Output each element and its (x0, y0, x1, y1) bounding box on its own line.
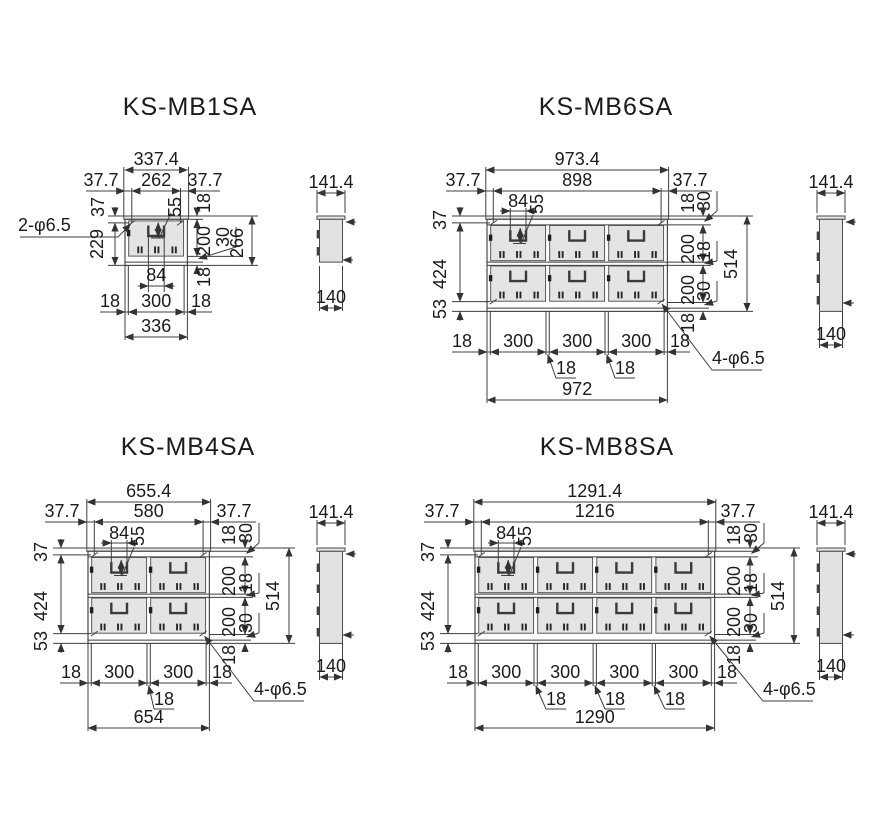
mb4-row-gap-label: 18 (236, 573, 256, 593)
mb4-handle-width-label: 84 (109, 523, 129, 543)
mb8-bottom-offset-label: 53 (418, 631, 438, 651)
mb1-side-body-depth-label: 140 (316, 287, 346, 307)
mb8-gap30-bottom-label: 30 (741, 613, 761, 633)
mb8-col-height-label: 424 (418, 591, 438, 621)
mb4-hole-note-label: 4-φ6.5 (254, 679, 307, 699)
mb8-side-body-depth-label: 140 (816, 656, 846, 676)
mb6-foot-right-label: 18 (670, 331, 690, 351)
mb6-margin-right-label: 37.7 (672, 170, 707, 190)
mb4-unit-width-label2: 300 (163, 662, 193, 682)
mb8-div-gap-label3: 18 (665, 689, 685, 709)
mb8-handle-drop-label: 55 (515, 526, 535, 546)
mb8-div-gap-label: 18 (546, 689, 566, 709)
mb4-side-body-depth-label: 140 (316, 656, 346, 676)
mb6-gap30-bottom-label: 30 (694, 281, 714, 301)
mb4-side-overall-depth-label: 141.4 (308, 502, 353, 522)
mailbox-dimension-drawing: KS-MB1SA 337.4 37.7 262 37.7 2-φ6.5 37 2… (0, 0, 878, 825)
diagram-mb6: KS-MB6SA 973.4 37.7 898 37.7 84 (430, 93, 856, 403)
mb4-bottom-offset-label: 53 (31, 631, 51, 651)
mb8-door (595, 558, 652, 593)
mb1-body-width-label: 336 (141, 316, 171, 336)
mb8-door (536, 558, 593, 593)
mb4-top-offset-label: 37 (31, 542, 51, 562)
mb1-flange-top-label: 18 (194, 193, 214, 213)
mb4-handle-drop-label: 55 (128, 526, 148, 546)
mb1-overall-height-label: 266 (227, 228, 247, 258)
mb8-hole-note-label: 4-φ6.5 (763, 679, 816, 699)
mb8-overall-width-label: 1291.4 (567, 481, 622, 501)
mb1-overall-width-label: 337.4 (134, 149, 179, 169)
mb6-unit-width-label: 300 (503, 331, 533, 351)
mb6-handle-drop-label: 55 (527, 194, 547, 214)
mb8-door (477, 598, 534, 633)
mb1-flange-bottom-label: 18 (194, 267, 214, 287)
mb6-unit-width-label2: 300 (562, 331, 592, 351)
mb1-hole-span-label: 262 (141, 170, 171, 190)
mb4-front-view (87, 548, 211, 643)
mb6-door (607, 266, 664, 301)
mb8-door (595, 598, 652, 633)
mb4-gap30-top-label: 30 (236, 523, 256, 543)
mb6-row-gap-label: 18 (694, 241, 714, 261)
mb4-door (149, 598, 206, 633)
mb8-foot-right-label: 18 (717, 662, 737, 682)
mb4-margin-right-label: 37.7 (216, 501, 251, 521)
mb8-hole-span-label: 1216 (575, 501, 615, 521)
mb8-title: KS-MB8SA (540, 433, 674, 461)
drawing-canvas: KS-MB1SA 337.4 37.7 262 37.7 2-φ6.5 37 2… (0, 0, 878, 825)
mb6-door (548, 226, 605, 261)
mb1-top-offset-label: 37 (88, 197, 108, 217)
mb8-overall-height-label: 514 (768, 581, 788, 611)
mb8-foot-left-label: 18 (448, 662, 468, 682)
mb6-hole-note-label: 4-φ6.5 (712, 348, 765, 368)
mb4-overall-height-label: 514 (263, 581, 283, 611)
mb4-col-height-label: 424 (31, 591, 51, 621)
mb8-gap30-top-label: 30 (741, 523, 761, 543)
mb1-hole-note-label: 2-φ6.5 (18, 215, 71, 235)
mb6-hole-span-label: 898 (562, 170, 592, 190)
mb8-margin-right-label: 37.7 (720, 501, 755, 521)
mb8-door (654, 558, 711, 593)
mb6-body-width-label: 972 (562, 379, 592, 399)
mb8-div-gap-label2: 18 (605, 689, 625, 709)
mb1-handle-drop-label: 55 (165, 197, 185, 217)
mb6-overall-width-label: 973.4 (555, 149, 600, 169)
mb8-unit-width-label2: 300 (550, 662, 580, 682)
mb4-hole-span-label: 580 (134, 501, 164, 521)
mb1-foot-left-label: 18 (100, 291, 120, 311)
mb6-overall-height-label: 514 (721, 249, 741, 279)
mb8-side-overall-depth-label: 141.4 (808, 502, 853, 522)
mb8-front-view (474, 548, 716, 643)
mb6-col-height-label: 424 (430, 259, 450, 289)
mb6-flange-bottom-label: 18 (678, 313, 698, 333)
mb6-foot-left-label: 18 (452, 331, 472, 351)
mb8-side-view: 141.4 140 (808, 502, 856, 680)
mb6-handle-width-label: 84 (508, 191, 528, 211)
mb6-bottom-offset-label: 53 (430, 299, 450, 319)
mb4-unit-width-label: 300 (104, 662, 134, 682)
mb4-body-width-label: 654 (134, 707, 164, 727)
mb4-margin-left-label: 37.7 (44, 501, 79, 521)
mb8-row-gap-label: 18 (741, 573, 761, 593)
mb1-front-view (124, 216, 189, 265)
mb6-top-offset-label: 37 (430, 210, 450, 230)
mb6-side-body-depth-label: 140 (816, 324, 846, 344)
mb8-top-offset-label: 37 (418, 542, 438, 562)
mb8-margin-left-label: 37.7 (424, 501, 459, 521)
mb6-gap30-top-label: 30 (694, 191, 714, 211)
mb1-foot-right-label: 18 (191, 291, 211, 311)
mb6-door (489, 266, 546, 301)
mb1-door-height-label: 200 (194, 226, 214, 256)
mb6-title: KS-MB6SA (539, 93, 673, 121)
mb4-overall-width-label: 655.4 (126, 481, 171, 501)
mb6-door (607, 226, 664, 261)
mb1-side-view: 141.4 140 (308, 172, 356, 311)
diagram-mb8: KS-MB8SA 1291.4 37.7 1216 37.7 84 (418, 433, 856, 731)
mb4-gap30-bottom-label: 30 (236, 613, 256, 633)
mb8-unit-width-label: 300 (491, 662, 521, 682)
mb4-div-gap-label: 18 (154, 689, 174, 709)
mb4-door (90, 598, 147, 633)
mb1-margin-right-label: 37.7 (187, 170, 222, 190)
mb6-side-view: 141.4 140 (808, 172, 856, 348)
mb1-margin-left-label: 37.7 (83, 170, 118, 190)
mb6-margin-left-label: 37.7 (445, 170, 480, 190)
mb1-handle-width-label: 84 (146, 265, 166, 285)
mb8-unit-width-label4: 300 (668, 662, 698, 682)
mb1-body-height-label: 229 (87, 229, 107, 259)
mb6-side-overall-depth-label: 141.4 (808, 172, 853, 192)
mb4-foot-left-label: 18 (61, 662, 81, 682)
mb4-door (149, 558, 206, 593)
diagram-mb4: KS-MB4SA 655.4 37.7 580 37.7 84 55 (31, 433, 356, 731)
mb8-door (654, 598, 711, 633)
mb6-door (548, 266, 605, 301)
mb6-div-gap-label: 18 (556, 358, 576, 378)
mb4-title: KS-MB4SA (121, 433, 255, 461)
mb6-unit-width-label3: 300 (621, 331, 651, 351)
mb8-unit-width-label3: 300 (609, 662, 639, 682)
mb1-unit-width-label: 300 (141, 291, 171, 311)
mb8-handle-width-label: 84 (496, 523, 516, 543)
mb8-door (536, 598, 593, 633)
mb1-side-overall-depth-label: 141.4 (308, 172, 353, 192)
mb6-div-gap-label2: 18 (615, 358, 635, 378)
mb6-front-view (486, 216, 669, 311)
mb4-side-view: 141.4 140 (308, 502, 356, 680)
mb4-foot-right-label: 18 (212, 662, 232, 682)
mb8-body-width-label: 1290 (575, 707, 615, 727)
diagram-mb1: KS-MB1SA 337.4 37.7 262 37.7 2-φ6.5 37 2… (18, 93, 356, 340)
mb1-title: KS-MB1SA (123, 93, 257, 121)
